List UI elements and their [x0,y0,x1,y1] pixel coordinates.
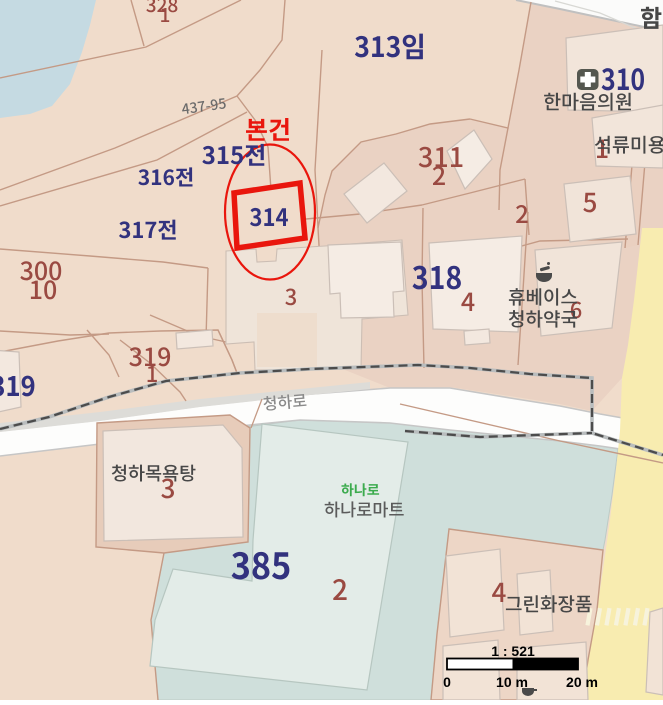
svg-text:20 m: 20 m [566,674,598,690]
svg-text:10 m: 10 m [496,674,528,690]
svg-text:1 : 521: 1 : 521 [491,643,535,659]
svg-text:0: 0 [443,674,451,690]
